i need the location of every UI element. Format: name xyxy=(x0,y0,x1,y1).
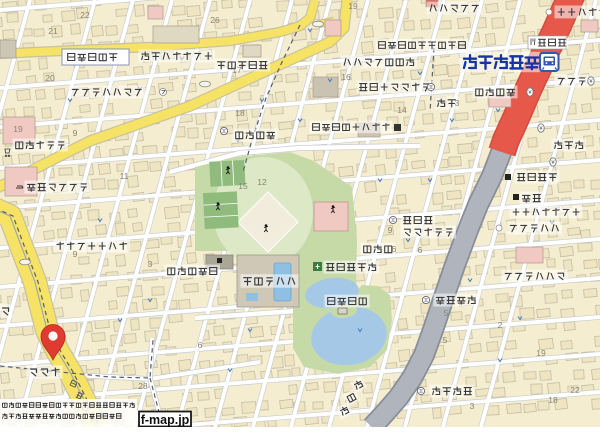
svg-text:3: 3 xyxy=(148,259,153,269)
svg-text:19: 19 xyxy=(348,1,358,11)
svg-text:22: 22 xyxy=(570,385,580,395)
svg-text:12: 12 xyxy=(257,177,267,187)
svg-text:6: 6 xyxy=(392,244,397,254)
svg-text:3: 3 xyxy=(470,401,475,411)
svg-text:18: 18 xyxy=(235,108,245,118)
svg-text:14: 14 xyxy=(397,105,407,115)
svg-text:18: 18 xyxy=(548,395,558,405)
svg-text:9: 9 xyxy=(73,249,78,259)
svg-text:9: 9 xyxy=(388,225,393,235)
svg-text:f-map.jp: f-map.jp xyxy=(141,413,190,427)
svg-text:15: 15 xyxy=(238,181,248,191)
svg-text:5: 5 xyxy=(443,335,448,345)
svg-text:11: 11 xyxy=(120,171,129,181)
svg-text:9: 9 xyxy=(73,128,78,138)
svg-text:5: 5 xyxy=(444,308,449,318)
svg-text:17: 17 xyxy=(232,65,242,75)
svg-text:2: 2 xyxy=(498,320,503,330)
svg-text:6: 6 xyxy=(418,245,423,255)
svg-text:19: 19 xyxy=(13,124,23,134)
svg-text:19: 19 xyxy=(536,348,546,358)
svg-text:20: 20 xyxy=(45,73,55,83)
svg-text:3: 3 xyxy=(455,98,460,108)
svg-text:22: 22 xyxy=(80,10,90,20)
svg-text:16: 16 xyxy=(341,72,351,82)
svg-text:6: 6 xyxy=(198,340,203,350)
svg-text:26: 26 xyxy=(210,15,220,25)
svg-text:21: 21 xyxy=(48,26,58,36)
svg-text:28: 28 xyxy=(138,381,148,391)
